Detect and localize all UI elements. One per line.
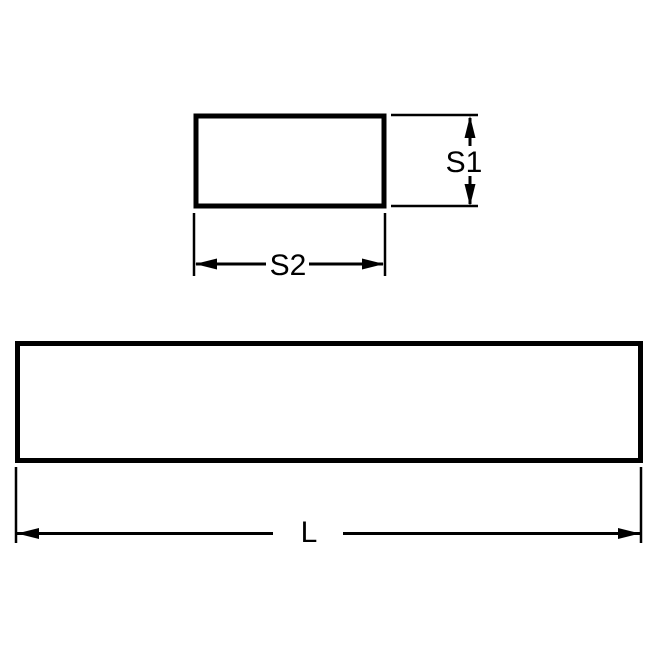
- side-view: L: [16, 344, 641, 550]
- l-label: L: [301, 516, 318, 549]
- dimension-s1: S1: [391, 115, 482, 206]
- side-view-rectangle: [18, 344, 641, 461]
- l-arrow-left-icon: [17, 528, 39, 539]
- s1-arrow-down-icon: [465, 184, 476, 206]
- s2-arrow-right-icon: [362, 259, 384, 270]
- drawing-svg: S1 S2 L: [0, 0, 670, 670]
- l-arrow-right-icon: [618, 528, 640, 539]
- dimension-l: L: [16, 467, 641, 549]
- cross-section-view: S1 S2: [194, 115, 482, 282]
- s2-label: S2: [270, 249, 307, 282]
- cross-section-rectangle: [196, 116, 384, 206]
- dimension-s2: S2: [194, 213, 385, 282]
- dimension-drawing: S1 S2 L: [0, 0, 670, 670]
- s1-label: S1: [446, 146, 483, 179]
- s2-arrow-left-icon: [195, 259, 217, 270]
- s1-arrow-up-icon: [465, 116, 476, 138]
